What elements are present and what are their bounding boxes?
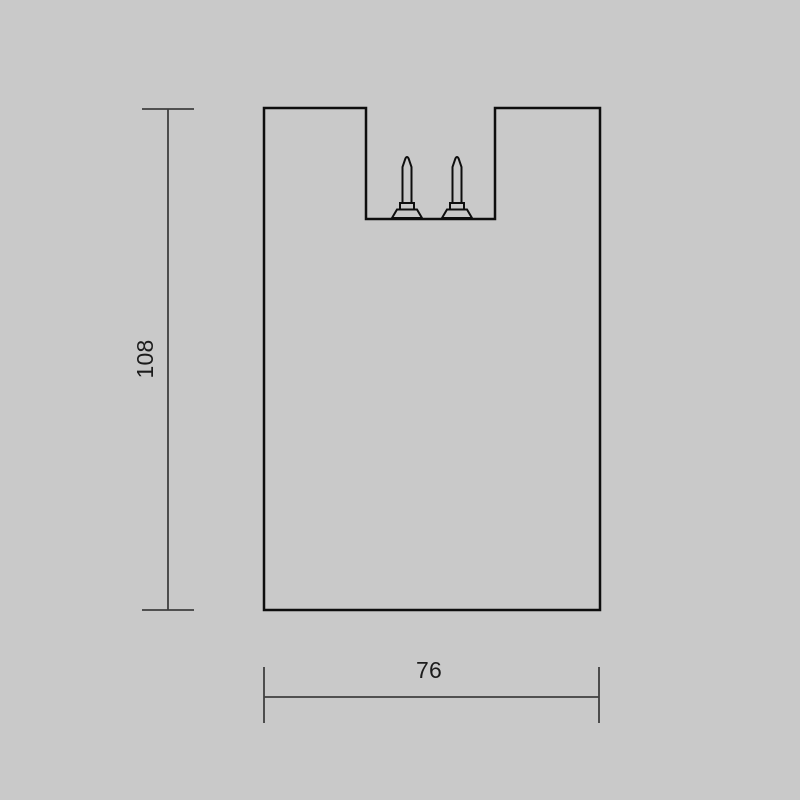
width-dimension-label: 76 [389, 658, 469, 682]
pin-base-icon [392, 210, 422, 219]
technical-drawing-canvas: 108 76 [0, 0, 800, 800]
pin-shaft-icon [403, 157, 412, 204]
pin-base-icon [442, 210, 472, 219]
contact-pin-right [442, 157, 472, 218]
pin-shaft-icon [453, 157, 462, 204]
contact-pin-left [392, 157, 422, 218]
fixture-body-outline [264, 108, 600, 610]
height-dimension-label: 108 [133, 319, 157, 399]
